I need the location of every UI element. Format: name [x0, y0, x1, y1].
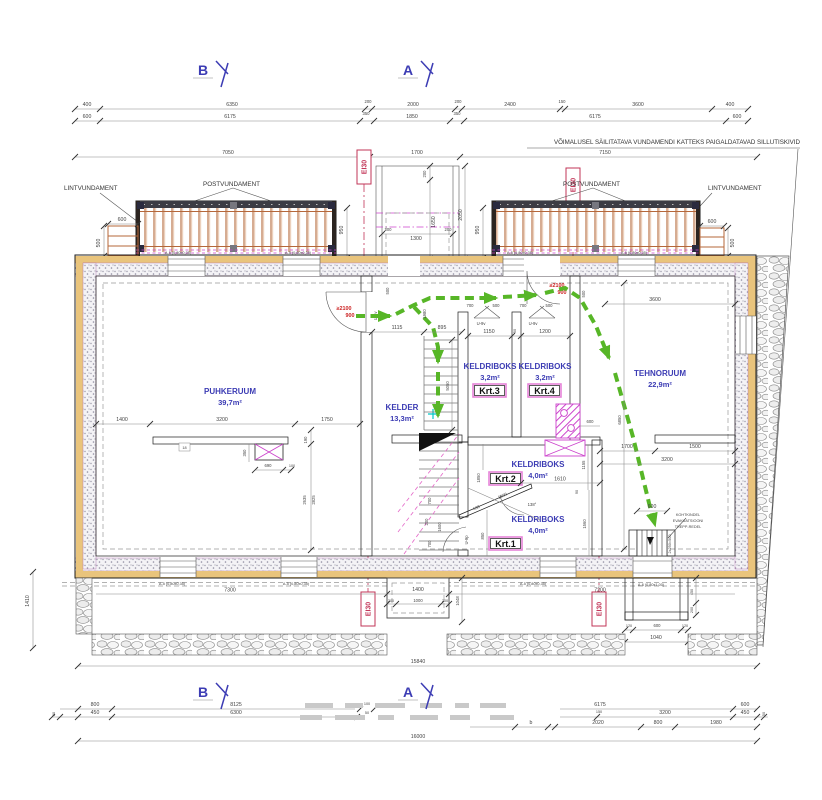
- dim-label: 190: [303, 436, 308, 444]
- dim-label: 895: [438, 325, 447, 331]
- room-area: 3,2m²: [535, 373, 555, 382]
- window: [540, 557, 576, 577]
- ei30-label: EI30: [597, 602, 604, 617]
- dim-label: 1560: [582, 519, 587, 529]
- dim-label: 100: [289, 464, 295, 468]
- dim-label: 800: [91, 702, 100, 708]
- dim-label: 1400: [412, 587, 424, 593]
- terrace-post: [493, 245, 500, 252]
- escape-hatch-opening: [633, 557, 672, 577]
- terrace-post: [137, 202, 144, 209]
- dim-label: 1200: [539, 329, 551, 335]
- door-krt2: 138°: [500, 495, 537, 515]
- top-dimension-row-2: 600 6175 350 1850 350 6175 600: [72, 111, 751, 124]
- unit-label: Krt.4: [534, 386, 555, 396]
- dim-label: 600: [648, 504, 657, 510]
- dim-label: 500: [493, 303, 501, 308]
- terrace-left-step: 600 500: [96, 217, 141, 259]
- dim-label: 500: [581, 290, 586, 298]
- dim-label: 500: [385, 287, 390, 295]
- terrace-post: [230, 202, 237, 209]
- dim-label: 200: [445, 227, 453, 232]
- dim-label: 600: [118, 217, 127, 223]
- dim-label: 400: [726, 102, 735, 108]
- dim-label: 1115: [392, 325, 403, 331]
- dim-label: 1040: [650, 635, 662, 641]
- terrace-post: [692, 202, 699, 209]
- dim-label: 2400: [504, 102, 516, 108]
- puhkeruum-crossed-box: 18: [179, 443, 283, 460]
- terrace-post: [328, 202, 335, 209]
- terrace-right-step: 600 500: [697, 219, 736, 259]
- window-tag: A-5 (0,80x0,35): [507, 251, 534, 255]
- section-letter: B: [198, 62, 208, 78]
- dim-label: 800: [654, 720, 663, 726]
- diagonal-partition: [459, 484, 532, 519]
- dim-label: 1400: [116, 417, 128, 423]
- room-area: 4,0m²: [528, 526, 548, 535]
- door-krt1: U-9p: [443, 527, 469, 552]
- dim-label: 8125: [230, 702, 242, 708]
- dim-label: b: [530, 720, 533, 726]
- dim-label: 700: [427, 497, 432, 505]
- entry-porch: 200 1650 2050 200 1300 200: [376, 163, 468, 262]
- dim-label: 690: [265, 463, 273, 468]
- room-area: 39,7m²: [218, 398, 242, 407]
- dim-label: 1700: [621, 444, 633, 450]
- dim-label: 16000: [411, 734, 426, 740]
- dim-label: 1600: [437, 522, 442, 532]
- room-name: KELDRIBOKS: [512, 460, 566, 469]
- dim-label: 700: [427, 540, 432, 548]
- dim-label: 3200: [216, 417, 228, 423]
- redacted-watermark: [300, 703, 514, 720]
- ei30-label: EI30: [366, 602, 373, 617]
- dim-label: 15840: [411, 659, 426, 665]
- dim-label: 200: [442, 599, 448, 603]
- dim-label: 1155: [581, 460, 586, 470]
- dim-label: 120: [682, 624, 688, 628]
- stair-lower-flight: [398, 433, 459, 554]
- chimney-flue: [545, 404, 585, 456]
- ladder-note-line: EVAKUATSIOONI: [673, 519, 703, 523]
- section-letter: A: [403, 62, 413, 78]
- room-area: 22,9m²: [648, 380, 672, 389]
- terrace-post: [592, 245, 599, 252]
- dim-label: 200: [424, 518, 429, 526]
- unit-label: Krt.2: [495, 474, 516, 484]
- room-name: KELDRIBOKS: [519, 362, 573, 371]
- ladder-note-line: TREPP-REDEL: [675, 525, 702, 529]
- level-cross-icon: [428, 409, 438, 419]
- dim-label: 600: [741, 702, 750, 708]
- door-height-label: ≥2100: [337, 306, 352, 312]
- section-marker-a-top: A: [398, 61, 433, 87]
- dim-label: 3600: [649, 297, 661, 303]
- room-name: KELDRIBOKS: [464, 362, 518, 371]
- section-arrow-icon: [216, 61, 228, 87]
- dim-label: 90: [575, 490, 579, 494]
- angle-label: 138°: [528, 502, 537, 507]
- dim-label: 2825: [311, 495, 316, 505]
- dim-label: 2020: [592, 720, 604, 726]
- dim-label: 2050: [458, 209, 464, 221]
- terrace-post: [493, 202, 500, 209]
- dim-label: 700: [520, 303, 528, 308]
- dim-label: 5050: [445, 381, 450, 391]
- terrace-post: [692, 245, 699, 252]
- window: [168, 256, 205, 276]
- section-marker-b-top: B: [193, 61, 228, 87]
- room-name: KELDER: [386, 403, 419, 412]
- top-dimension-row-1: 400 6350 200 2000 200 2400 150 3600 400: [72, 99, 751, 112]
- dim-label: 6350: [226, 102, 238, 108]
- window: [281, 557, 317, 577]
- dim-label: 950: [339, 226, 345, 235]
- room-name: PUHKERUUM: [204, 387, 256, 396]
- terrace-left: [136, 201, 336, 258]
- window-tag: A-5 (0,80x0,35): [621, 251, 648, 255]
- window-tag: A-5 (0,80x0,35): [159, 582, 186, 586]
- dim-label: 450: [741, 710, 750, 716]
- window-tag: A-5 (0,80x0,35): [520, 582, 547, 586]
- window-tag: A-6 (0,80x1,00): [638, 583, 665, 587]
- dim-label: 50: [513, 329, 517, 333]
- window: [283, 256, 320, 276]
- section-letter: B: [198, 684, 208, 700]
- postvundament-label-right: POSTVUNDAMENT: [563, 181, 620, 188]
- dim-label: 350: [242, 449, 247, 457]
- dim-label: 1700: [411, 150, 423, 156]
- lintvundament-label-right: LINTVUNDAMENT: [708, 185, 762, 192]
- light-well-left: 1400 200 1000 200 1048: [384, 575, 465, 625]
- dim-label: 1500: [689, 444, 701, 450]
- dim-label: 450: [91, 710, 100, 716]
- basement-floor-plan-drawing: B A 400 6350 200 2000 200 2400 150 3600 …: [0, 0, 822, 800]
- room-area: 4,0m²: [528, 471, 548, 480]
- dim-label: 2635: [302, 495, 307, 505]
- section-letter: A: [403, 684, 413, 700]
- postvundament-label-left: POSTVUNDAMENT: [203, 181, 260, 188]
- dim-label: 500: [546, 303, 554, 308]
- door-tag: U-9p: [464, 535, 469, 545]
- dim-label: 150: [559, 99, 567, 104]
- dim-label: 1610: [554, 477, 566, 483]
- dim-label: 200: [365, 99, 373, 104]
- terrace-post: [230, 245, 237, 252]
- ladder-note-line: KOHTKINDEL: [676, 513, 700, 517]
- room-name: TEHNORUUM: [634, 369, 686, 378]
- dim-label: 3200: [661, 457, 673, 463]
- dim-label: 50: [365, 711, 369, 715]
- dim-label: 200: [455, 99, 463, 104]
- dim-label: 1300: [410, 236, 422, 242]
- dim-label: 7200: [594, 588, 606, 594]
- dim-label: 7300: [224, 588, 236, 594]
- floor-plan-page: B A 400 6350 200 2000 200 2400 150 3600 …: [0, 0, 822, 800]
- dim-label: 400: [83, 102, 92, 108]
- dim-label: 600: [733, 114, 742, 120]
- top-dimension-row-3: 7050 1700 7150: [72, 150, 760, 160]
- puhkeruum-dims: 1400 3200 1750 190 2635 2825 350 690 100: [93, 417, 363, 553]
- section-marker-b-bottom: B: [193, 683, 228, 709]
- window-tag: A-5 (0,80x0,35): [285, 251, 312, 255]
- dim-label: 6850: [617, 415, 622, 425]
- dim-label: 350: [454, 111, 462, 116]
- dim-label: 600: [654, 623, 662, 628]
- door-width-label: 900: [346, 313, 355, 319]
- unit-label: Krt.3: [479, 386, 500, 396]
- dim-label: 6175: [589, 114, 601, 120]
- terrace-post: [328, 245, 335, 252]
- window: [618, 256, 655, 276]
- door-width-label: 900: [558, 290, 567, 296]
- dim-label: 7150: [599, 150, 611, 156]
- dim-label: 1650: [431, 216, 437, 228]
- unit-label: Krt.1: [495, 539, 516, 549]
- vent-tag: U-9v: [529, 321, 539, 326]
- room-area: 13,3m²: [390, 414, 414, 423]
- dim-label: 1900: [497, 491, 508, 500]
- door-puhkeruum: ≥2100 900 U-4v 500: [326, 287, 390, 332]
- dim-label: 1048: [455, 596, 460, 606]
- dim-label: 6175: [224, 114, 236, 120]
- note-text: VÕIMALUSEL SÄILITATAVA VUNDAMENDI KATTEK…: [554, 139, 801, 146]
- dim-label: 200: [690, 607, 694, 613]
- dim-label: 6175: [594, 702, 606, 708]
- dim-label: 700: [467, 303, 475, 308]
- section-arrow-icon: [216, 683, 228, 709]
- stair-upper-flight: [424, 336, 458, 430]
- keldriboks-vents: U-9v U-9v: [474, 306, 555, 326]
- dim-label: 1410: [25, 595, 31, 607]
- dim-label: 1980: [710, 720, 722, 726]
- terrace-right: [492, 201, 700, 258]
- dim-label: 600: [587, 419, 595, 424]
- dim-label: 2000: [407, 102, 419, 108]
- light-well-right: A-6 (0,80x1,00) 120 600 120 1040 450 200: [622, 575, 699, 645]
- dim-label: 100: [364, 702, 370, 706]
- section-arrow-icon: [421, 61, 433, 87]
- dim-label: 120: [626, 624, 632, 628]
- dim-label: 200: [388, 599, 394, 603]
- dim-label: 600: [708, 219, 717, 225]
- window: [160, 557, 196, 577]
- dim-label: 50: [762, 712, 766, 716]
- dim-label: 500: [730, 239, 736, 248]
- dim-label: 1980: [422, 309, 427, 319]
- dim-label: 200: [422, 170, 427, 178]
- dim-label: 600: [83, 114, 92, 120]
- window-tag: A-5 (0,80x0,35): [283, 582, 310, 586]
- dim-label: 850: [480, 532, 485, 540]
- terrace-post: [592, 202, 599, 209]
- lintvundament-label-left: LINTVUNDAMENT: [64, 185, 118, 192]
- dim-label: 18: [182, 446, 186, 450]
- dim-label: 6300: [230, 710, 242, 716]
- room-area: 3,2m²: [480, 373, 500, 382]
- bench-wall: [153, 437, 288, 444]
- ei30-label: EI30: [362, 160, 369, 175]
- dim-label: 200: [385, 227, 393, 232]
- bottom-dimensions: 15840 800 8125 100 6175 600 50 450 6300 …: [49, 659, 768, 744]
- vent-tag: U-9v: [477, 321, 487, 326]
- dim-label: 3200: [659, 710, 671, 716]
- dim-label: 7050: [222, 150, 234, 156]
- dim-label: 950: [475, 226, 481, 235]
- dim-label: 150: [596, 710, 602, 714]
- dim-label: 3600: [632, 102, 644, 108]
- dim-label: 1150: [483, 329, 494, 335]
- dim-label: 1750: [321, 417, 333, 423]
- dim-label: 500: [96, 239, 102, 248]
- dim-label: 1000: [413, 598, 423, 603]
- dim-label: 350: [363, 111, 371, 116]
- dim-label: 1850: [476, 473, 481, 483]
- dim-label: 50: [52, 712, 56, 716]
- dim-label: 1850: [406, 114, 418, 120]
- porch-door-opening: [388, 256, 420, 276]
- window-tag: A-5 (0,80x0,35): [165, 251, 192, 255]
